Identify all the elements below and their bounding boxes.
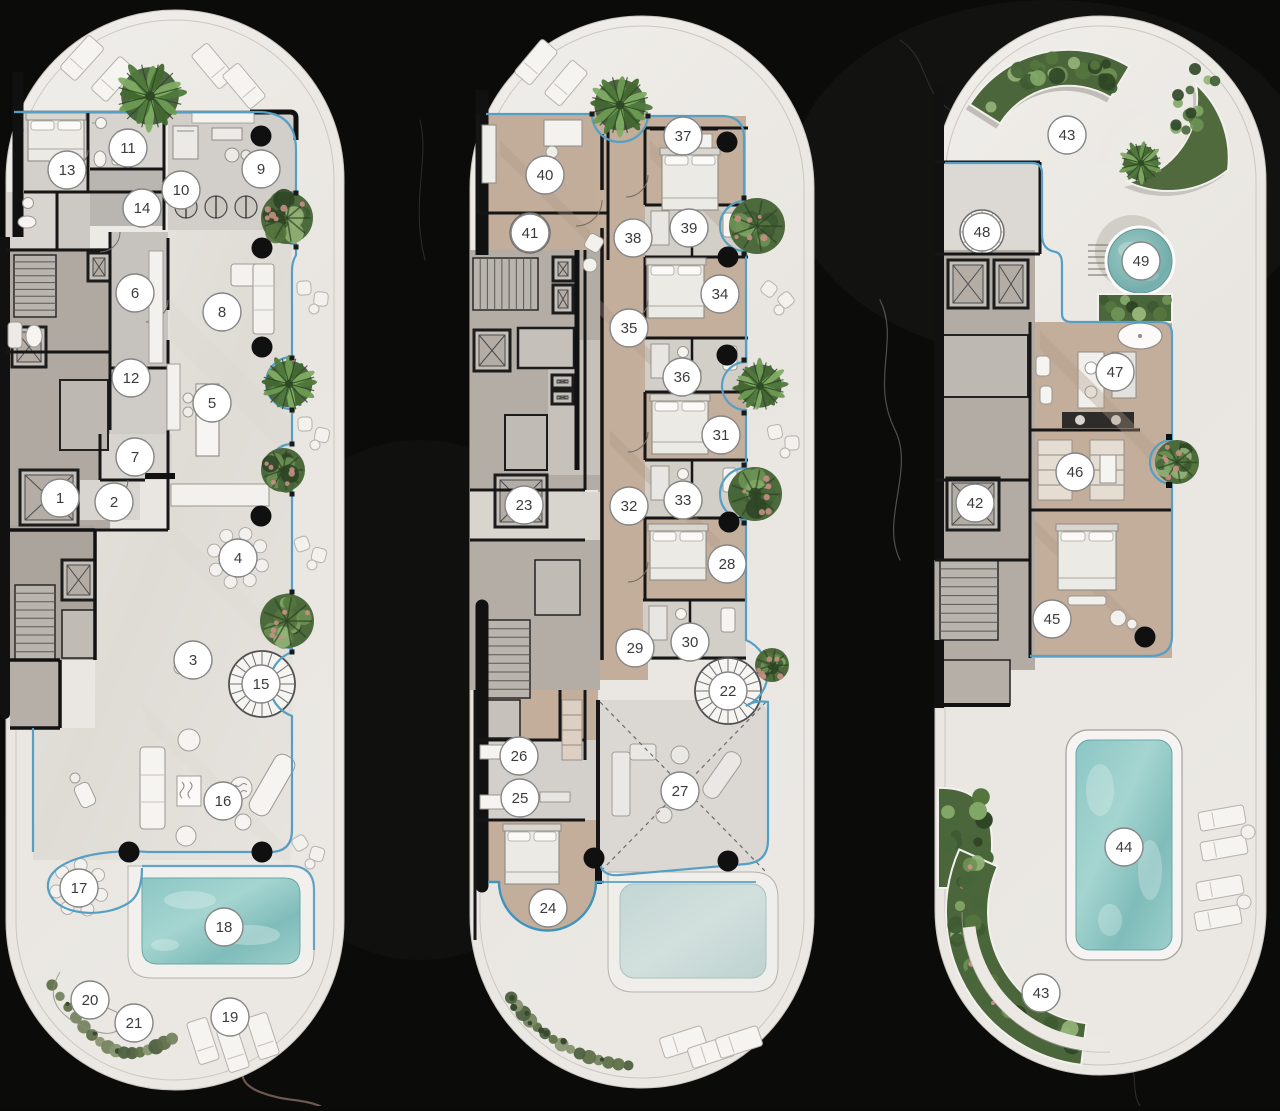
svg-text:32: 32: [621, 498, 638, 515]
svg-text:24: 24: [540, 900, 557, 917]
svg-text:43: 43: [1033, 985, 1050, 1002]
svg-text:11: 11: [120, 140, 136, 157]
svg-text:4: 4: [234, 550, 242, 567]
svg-text:39: 39: [681, 220, 698, 237]
svg-text:1: 1: [56, 490, 64, 507]
svg-text:20: 20: [82, 992, 99, 1009]
svg-text:5: 5: [208, 395, 216, 412]
svg-text:38: 38: [625, 230, 642, 247]
svg-text:13: 13: [59, 162, 76, 179]
svg-text:15: 15: [253, 676, 270, 693]
svg-text:33: 33: [675, 492, 692, 509]
svg-text:49: 49: [1133, 253, 1150, 270]
svg-text:28: 28: [719, 556, 736, 573]
svg-text:26: 26: [511, 748, 528, 765]
svg-text:9: 9: [257, 161, 265, 178]
svg-text:37: 37: [675, 128, 692, 145]
svg-text:47: 47: [1107, 364, 1124, 381]
svg-text:42: 42: [967, 495, 984, 512]
svg-text:22: 22: [720, 683, 737, 700]
svg-text:48: 48: [974, 224, 991, 241]
svg-text:25: 25: [512, 790, 529, 807]
svg-text:43: 43: [1059, 127, 1076, 144]
svg-text:3: 3: [189, 652, 197, 669]
svg-text:19: 19: [222, 1009, 239, 1026]
svg-text:10: 10: [173, 182, 190, 199]
svg-text:31: 31: [713, 427, 730, 444]
svg-text:35: 35: [621, 320, 638, 337]
svg-text:34: 34: [712, 286, 729, 303]
svg-text:41: 41: [522, 225, 539, 242]
svg-text:2: 2: [110, 494, 118, 511]
svg-text:30: 30: [682, 634, 699, 651]
svg-text:16: 16: [215, 793, 232, 810]
svg-text:27: 27: [672, 783, 689, 800]
svg-text:12: 12: [123, 370, 140, 387]
svg-text:36: 36: [674, 369, 691, 386]
svg-text:44: 44: [1116, 839, 1133, 856]
svg-text:7: 7: [131, 449, 139, 466]
svg-text:18: 18: [216, 919, 233, 936]
svg-text:45: 45: [1044, 611, 1061, 628]
svg-text:46: 46: [1067, 464, 1084, 481]
svg-text:29: 29: [627, 640, 644, 657]
svg-text:23: 23: [516, 497, 533, 514]
svg-text:8: 8: [218, 304, 226, 321]
svg-text:21: 21: [126, 1015, 143, 1032]
svg-text:6: 6: [131, 285, 139, 302]
svg-text:17: 17: [71, 880, 88, 897]
svg-text:14: 14: [134, 200, 151, 217]
svg-text:40: 40: [537, 167, 554, 184]
